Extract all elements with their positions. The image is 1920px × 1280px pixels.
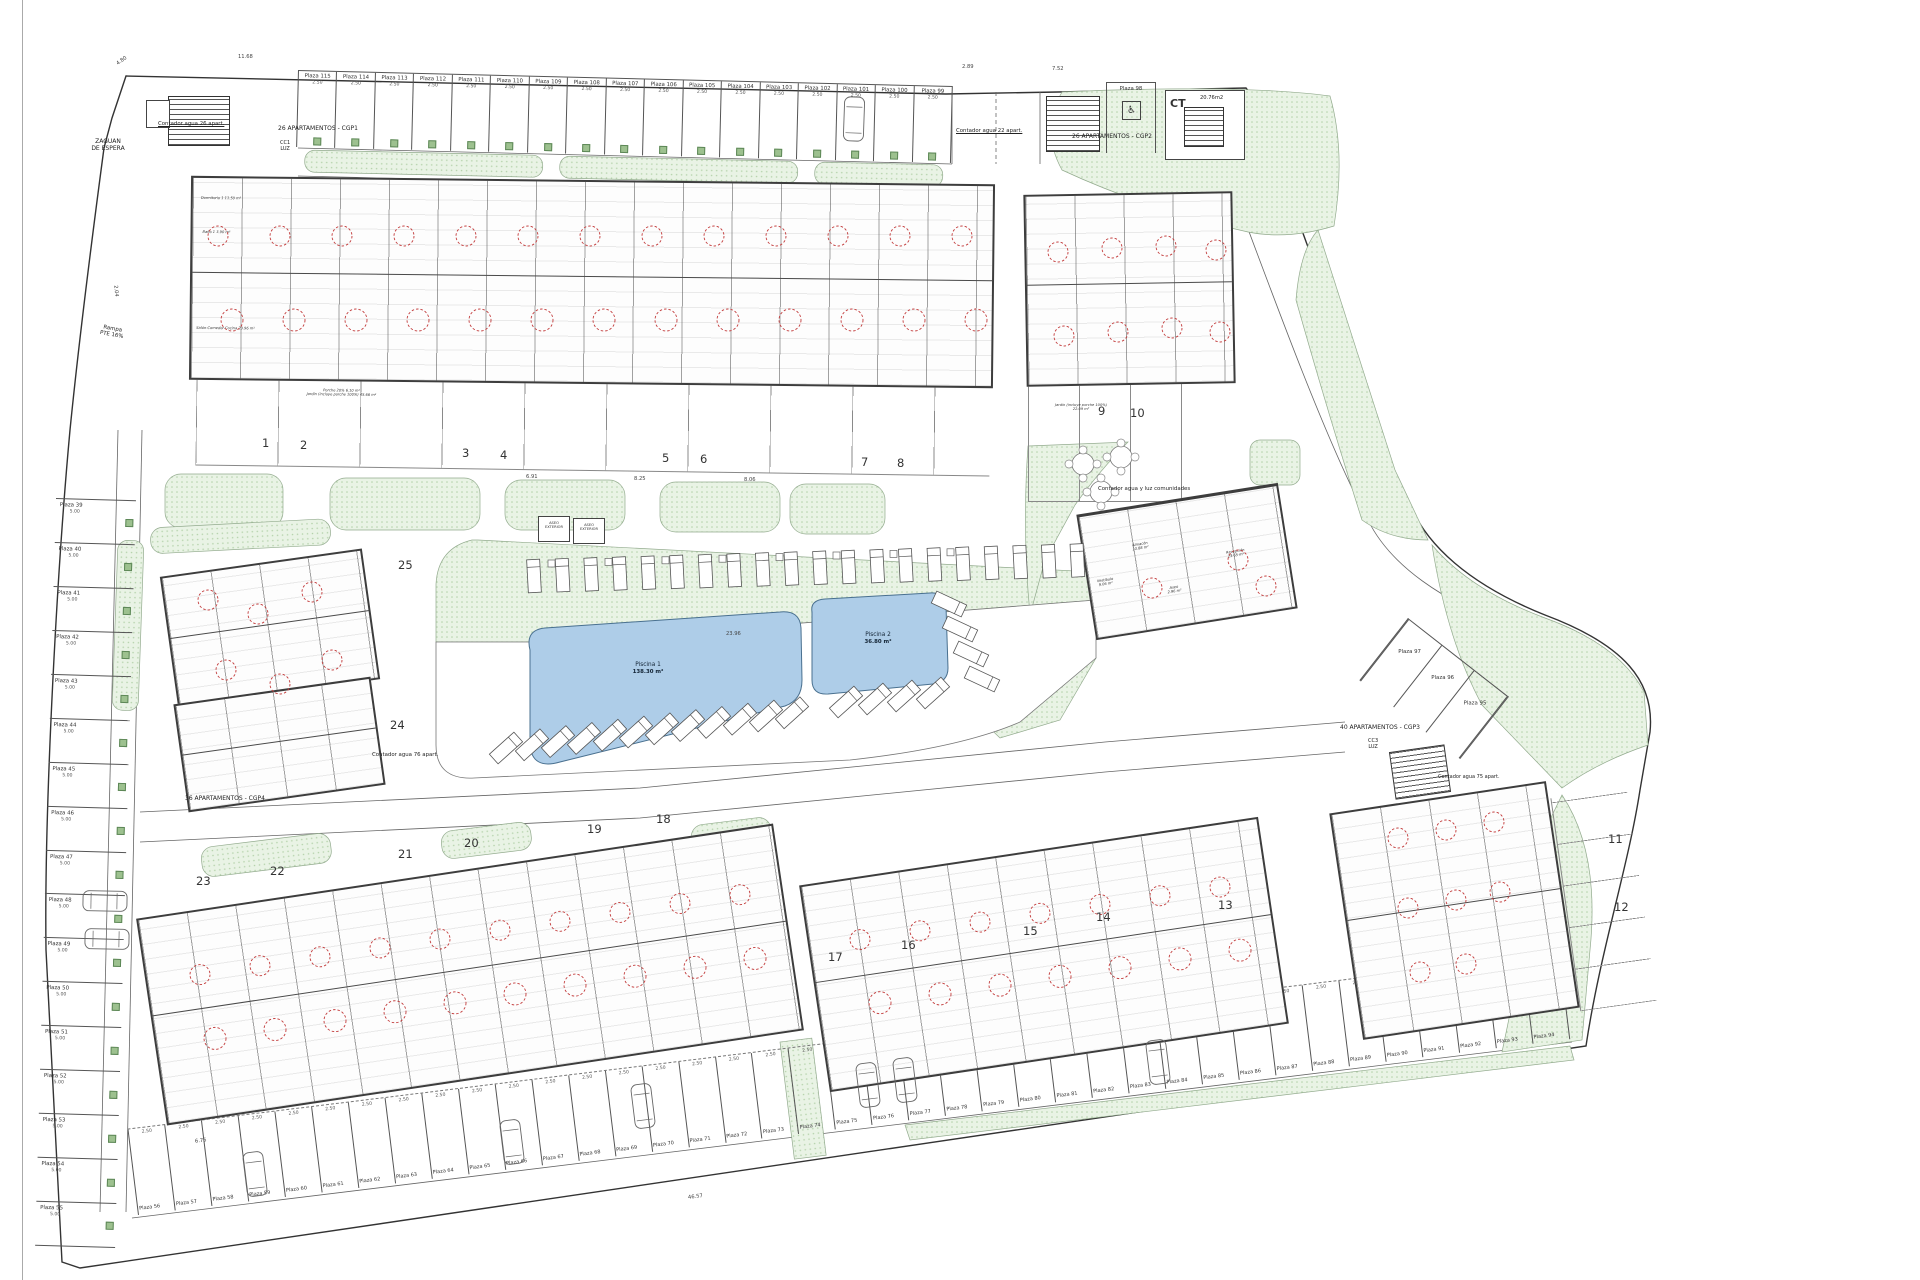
parking-stall-label: Plaza 73	[763, 1127, 785, 1136]
parking-stall-label: Plaza 75	[836, 1118, 858, 1127]
parking-stall-dim: 5.00	[63, 729, 129, 736]
plot-number-23: 23	[196, 874, 211, 888]
contador76-label: Contador agua 76 apart.	[372, 752, 438, 758]
parking-stall-dim: 2.50	[837, 93, 875, 99]
plot-number-12: 12	[1614, 900, 1629, 914]
ct-equipment	[1184, 107, 1224, 147]
parking-stall-label: Plaza 114	[337, 74, 375, 81]
parking-stall-label: Plaza 99	[914, 88, 952, 95]
parking-stall-dim: 2.50	[142, 1129, 153, 1135]
parking-stall-dim: 2.50	[765, 1052, 776, 1058]
parking-stall: Plaza 525.00	[39, 1069, 120, 1115]
plot-number-17: 17	[828, 950, 843, 964]
shrub-icon	[109, 1090, 117, 1098]
parking-stall-dim: 2.50	[452, 84, 490, 90]
parking-stall-dim: 2.50	[645, 88, 683, 94]
block-b-apartments	[1023, 191, 1235, 387]
parking-stall-label: Plaza 98	[1107, 86, 1155, 92]
contadorcom-label: Contador agua y luz comunidades	[1098, 486, 1190, 492]
parking-stall: Plaza 1152.50	[296, 71, 336, 148]
parking-stall-dim: 5.00	[65, 685, 131, 692]
shrub-icon	[851, 151, 859, 159]
plot-number-24: 24	[390, 718, 405, 732]
ct-room: CT 20.76m2	[1165, 90, 1245, 160]
cgp4-label: 36 APARTAMENTOS - CGP4	[185, 795, 265, 802]
parking-stall: Plaza 485.00	[44, 893, 125, 939]
parking-stall-dim: 2.50	[215, 1120, 226, 1126]
parking-stall: Plaza 1122.50	[411, 74, 451, 151]
shrub-icon	[697, 147, 705, 155]
parking-stall-dim: 5.00	[67, 597, 133, 604]
parking-stall-label: Plaza 93	[1497, 1037, 1519, 1046]
parking-stall-label: Plaza 64	[432, 1167, 454, 1176]
shrub-icon	[108, 1134, 116, 1142]
parking-stall-label: Plaza 90	[1386, 1050, 1408, 1059]
parking-stall-dim: 2.50	[729, 1057, 740, 1063]
parking-stall-dim: 5.00	[50, 1212, 116, 1219]
parking-stall-label: Plaza 86	[1240, 1068, 1262, 1077]
shrub-icon	[659, 146, 667, 154]
parking-stall-label: Plaza 65	[469, 1163, 491, 1172]
parking-stall-label: Plaza 82	[1093, 1086, 1115, 1095]
room-label: Aseo 2.96 m²	[1167, 584, 1182, 595]
parking-stall-dim: 2.50	[875, 94, 913, 100]
parking-stall-label: Plaza 88	[1313, 1059, 1335, 1068]
parking-stall-dim: 2.50	[606, 88, 644, 94]
parking-stall-label: Plaza 60	[286, 1185, 308, 1194]
dim-label: 7.52	[1052, 66, 1064, 72]
parking-stall-dim: 5.00	[57, 949, 123, 956]
parking-stall-label: Plaza 66	[506, 1158, 528, 1167]
plot-number-25: 25	[398, 558, 413, 572]
parking-stall: Plaza 505.00	[41, 981, 122, 1027]
shrub-icon	[120, 695, 128, 703]
shrub-icon	[351, 138, 359, 146]
shrub-icon	[428, 140, 436, 148]
parking-stall-label: Plaza 113	[376, 75, 414, 82]
parking-stall-label: Plaza 103	[760, 84, 798, 91]
plot-number-2: 2	[300, 438, 307, 452]
ct-label: CT	[1170, 97, 1186, 110]
shrub-icon	[928, 152, 936, 160]
shrub-icon	[122, 651, 130, 659]
parking-stall: Plaza 425.00	[51, 630, 132, 676]
parking-stall: Plaza 495.00	[43, 937, 124, 983]
contador26-label: Contador agua 26 apart.	[158, 121, 224, 127]
dim-label: 8.06	[744, 477, 756, 483]
parking-stall-label: Plaza 112	[414, 76, 452, 83]
plot-number-10: 10	[1130, 406, 1145, 420]
plot-number-11: 11	[1608, 832, 1623, 846]
parking-stall: Plaza 445.00	[49, 718, 130, 764]
parking-stall-label: Plaza 102	[799, 85, 837, 92]
parking-stall-dim: 2.50	[1316, 985, 1327, 991]
parking-stall-label: Plaza 95	[1455, 701, 1496, 707]
dim-label: 6.91	[526, 474, 538, 480]
parking-stall: Plaza 555.00	[35, 1201, 116, 1248]
parking-stall: Plaza 415.00	[52, 586, 133, 632]
parking-stall-label: Plaza 89	[1350, 1055, 1372, 1064]
parking-stall: Plaza 1032.50	[758, 82, 798, 159]
parking-stall-dim: 5.00	[60, 861, 126, 868]
parking-stall-label: Plaza 115	[299, 73, 337, 80]
parking-stall: Plaza 455.00	[47, 762, 128, 808]
pool-2-label: Piscina 236.80 m²	[840, 632, 916, 646]
parking-stall-dim: 2.50	[582, 1075, 593, 1081]
parking-stall: Plaza 405.00	[54, 542, 135, 588]
shrub-icon	[582, 144, 590, 152]
parking-stall: Plaza 465.00	[46, 805, 127, 851]
parking-stall-dim: 2.50	[508, 1084, 519, 1090]
shrub-icon	[118, 783, 126, 791]
parking-stall: Plaza 475.00	[45, 849, 126, 895]
shrub-icon	[390, 139, 398, 147]
shrub-icon	[124, 563, 132, 571]
parking-stall-dim: 5.00	[51, 1168, 117, 1175]
block-a-garden-strips: Porche 20% 6.10 m² Jardín (incluye porch…	[195, 376, 990, 476]
parking-stall-label: Plaza 110	[491, 78, 529, 85]
parking-stall-dim: 2.50	[802, 1048, 813, 1054]
contador75-label: Contador agua 75 apart.	[1438, 774, 1500, 780]
room-label: Almacén 13.88 m²	[1131, 541, 1149, 552]
parking-stall-label: Plaza 92	[1460, 1041, 1482, 1050]
parking-stall-label: Plaza 63	[396, 1172, 418, 1181]
parking-stall: Plaza 1012.50	[835, 84, 875, 161]
parking-stall-dim: 2.50	[337, 81, 375, 87]
pool-kiosk-2: ASEO EXTERIOR	[573, 518, 605, 544]
parking-stall: Plaza 1092.50	[527, 77, 567, 154]
plot-number-18: 18	[656, 812, 671, 826]
parking-stall: Plaza 1072.50	[604, 79, 644, 156]
parking-stall: Plaza 1042.50	[719, 81, 759, 158]
block-g-stair-core	[1389, 744, 1451, 799]
parking-stall-dim: 2.50	[568, 87, 606, 93]
parking-stall-label: Plaza 76	[873, 1113, 895, 1122]
cc3-label: CC3 LUZ	[1368, 738, 1378, 750]
shrub-icon	[467, 141, 475, 149]
cgp3-label: 40 APARTAMENTOS - CGP3	[1340, 724, 1420, 731]
parking-stall-label: Plaza 57	[176, 1199, 198, 1208]
parking-stall-dim: 5.00	[68, 553, 134, 560]
shrub-icon	[505, 142, 513, 150]
plot-number-7: 7	[861, 455, 868, 469]
plot-number-8: 8	[897, 456, 904, 470]
dim-label: 2.04	[112, 285, 119, 297]
pool-kiosk-label: ASEO EXTERIOR	[576, 523, 602, 532]
plot-number-21: 21	[398, 847, 413, 861]
entry-stair-core	[1046, 96, 1100, 152]
parking-stall-dim: 2.50	[914, 95, 952, 101]
parking-stall-dim: 2.50	[376, 82, 414, 88]
plot-number-13: 13	[1218, 898, 1233, 912]
parking-stall-label: Plaza 74	[799, 1122, 821, 1131]
parking-stall-dim: 2.50	[529, 86, 567, 92]
contador22-label: Contador agua 22 apart.	[956, 128, 1022, 134]
plot-number-1: 1	[262, 436, 269, 450]
shrub-icon	[106, 1222, 114, 1230]
parking-stall-dim: 2.50	[325, 1106, 336, 1112]
parking-stall-98: Plaza 98 ♿	[1106, 82, 1156, 153]
plot-number-5: 5	[662, 451, 669, 465]
parking-stall: Plaza 395.00	[55, 498, 136, 544]
garden-label: Porche 20% 6.10 m² Jardín (incluye porch…	[296, 388, 386, 398]
parking-stall-label: Plaza 72	[726, 1131, 748, 1140]
shrub-icon	[115, 871, 123, 879]
parking-stall-label: Plaza 70	[653, 1140, 675, 1149]
parking-stall: Plaza 1102.50	[488, 76, 528, 153]
parking-stall-dim: 5.00	[62, 773, 128, 780]
parking-stall-dim: 5.00	[55, 1036, 121, 1043]
parking-stall: Plaza 1002.50	[873, 85, 913, 162]
parking-stall: Plaza 1132.50	[373, 73, 413, 150]
parking-stall-dim: 2.50	[398, 1097, 409, 1103]
parking-stall: Plaza 1082.50	[565, 78, 605, 155]
cc1-label: CC1 LUZ	[280, 140, 290, 152]
parking-stall-dim: 5.00	[66, 641, 132, 648]
dim-label: 8.25	[634, 476, 646, 482]
parking-stall-dim: 2.50	[491, 85, 529, 91]
parking-stall: Plaza 545.00	[36, 1157, 117, 1203]
parking-stall: Plaza 435.00	[50, 674, 131, 720]
pool-kiosk-label: ASEO EXTERIOR	[541, 521, 567, 530]
parking-stall-label: Plaza 69	[616, 1145, 638, 1154]
shrub-icon	[890, 151, 898, 159]
parking-stall: Plaza 515.00	[40, 1025, 121, 1071]
plot-number-19: 19	[587, 822, 602, 836]
parking-stall-label: Plaza 77	[909, 1109, 931, 1118]
parking-stall-label: Plaza 84	[1166, 1077, 1188, 1086]
parking-stall: Plaza 1062.50	[642, 79, 682, 156]
parking-stall: Plaza 1022.50	[796, 83, 836, 160]
parking-stall-label: Plaza 104	[722, 83, 760, 90]
parking-stall-dim: 5.00	[52, 1124, 118, 1131]
parking-stall-dim: 2.50	[692, 1061, 703, 1067]
shrub-icon	[813, 150, 821, 158]
plot-number-6: 6	[700, 452, 707, 466]
plot-number-4: 4	[500, 448, 507, 462]
cgp2-label: 26 APARTAMENTOS - CGP2	[1072, 133, 1152, 140]
zaguan-label: ZAGUAN DE ESPERA	[80, 138, 136, 152]
ct-area-label: 20.76m2	[1200, 95, 1223, 101]
plot-number-22: 22	[270, 864, 285, 878]
shrub-icon	[544, 143, 552, 151]
plot-number-14: 14	[1096, 910, 1111, 924]
plot-number-16: 16	[901, 938, 916, 952]
parking-stall: Plaza 1142.50	[335, 72, 375, 149]
parking-stall-label: Plaza 91	[1423, 1046, 1445, 1055]
parking-stall-label: Plaza 79	[983, 1100, 1005, 1109]
room-label: Salón-Comedor-Cocina 23.96 m²	[195, 326, 255, 331]
parking-stall-dim: 5.00	[61, 817, 127, 824]
plot-number-15: 15	[1023, 924, 1038, 938]
block-g-apartments	[1329, 781, 1579, 1040]
shrub-icon	[621, 145, 629, 153]
parking-row-top: Plaza 1152.50Plaza 1142.50Plaza 1132.50P…	[296, 70, 953, 163]
parking-stall: Plaza 1052.50	[681, 80, 721, 157]
parking-stall-label: Plaza 100	[876, 87, 914, 94]
parking-stall-label: Plaza 68	[579, 1149, 601, 1158]
block-a-apartments: Dormitorio 1 11.50 m² Baño 1 3.90 m² Sal…	[189, 176, 995, 388]
parking-stall-dim: 2.50	[683, 89, 721, 95]
parking-stall-label: Plaza 80	[1020, 1095, 1042, 1104]
parking-stall-label: Plaza 61	[322, 1181, 344, 1190]
parking-stall-label: Plaza 94	[1533, 1032, 1555, 1041]
shrub-icon	[119, 739, 127, 747]
shrub-icon	[117, 827, 125, 835]
parking-stall-label: Plaza 109	[530, 79, 568, 86]
parking-stall-label: Plaza 107	[606, 81, 644, 88]
parking-stall-label: Plaza 83	[1130, 1082, 1152, 1091]
dim-label: 23.96	[726, 631, 741, 637]
parking-stall-dim: 2.50	[414, 83, 452, 89]
shrub-icon	[112, 1003, 120, 1011]
shrub-icon	[313, 137, 321, 145]
shrub-icon	[125, 519, 133, 527]
parking-stall-label: Plaza 108	[568, 80, 606, 87]
parking-stall-label: Plaza 96	[1422, 675, 1463, 681]
parking-stall-label: Plaza 81	[1056, 1091, 1078, 1100]
handicap-icon: ♿	[1122, 101, 1141, 120]
parking-stall-label: Plaza 106	[645, 81, 683, 88]
pool-kiosk-1: ASEO EXTERIOR	[538, 516, 570, 542]
garden-label: Jardín (incluye porche 100%) 22.09 m²	[1038, 403, 1124, 412]
parking-stall-dim: 2.50	[252, 1115, 263, 1121]
shrub-icon	[107, 1178, 115, 1186]
parking-stall-dim: 5.00	[59, 905, 125, 912]
parking-stall-dim: 5.00	[56, 993, 122, 1000]
parking-stall-dim: 2.50	[299, 80, 337, 86]
room-label: Recepción 23.65 m²	[1226, 548, 1246, 559]
shrub-icon	[774, 149, 782, 157]
parking-stall-label: Plaza 67	[543, 1154, 565, 1163]
parking-stall-dim: 2.50	[288, 1111, 299, 1117]
plot-number-9: 9	[1098, 404, 1105, 418]
parking-stall-label: Plaza 111	[453, 77, 491, 84]
parking-stall-dim: 5.00	[54, 1080, 120, 1087]
parking-stall: Plaza 1112.50	[450, 75, 490, 152]
parking-stall-label: Plaza 56	[139, 1203, 161, 1212]
shrub-icon	[123, 607, 131, 615]
parking-stall: Plaza 992.50	[911, 86, 952, 163]
room-label: Baño 1 3.90 m²	[202, 230, 230, 235]
parking-stall-label: Plaza 78	[946, 1104, 968, 1113]
parking-stall-label: Plaza 62	[359, 1176, 381, 1185]
shrub-icon	[110, 1046, 118, 1054]
parking-stall-dim: 2.50	[722, 90, 760, 96]
parking-stall-label: Plaza 85	[1203, 1073, 1225, 1082]
parking-stall-label: Plaza 59	[249, 1190, 271, 1199]
parking-stall-dim: 2.50	[760, 91, 798, 97]
plot-number-20: 20	[464, 836, 479, 850]
parking-stall-dim: 2.50	[362, 1102, 373, 1108]
parking-stall-label: Plaza 105	[683, 82, 721, 89]
room-label: Dormitorio 1 11.50 m²	[201, 196, 241, 201]
parking-stall-dim: 2.50	[178, 1124, 189, 1130]
site-plan-page: CT 20.76m2 Dormitorio 1 11.50 m² Baño 1 …	[0, 0, 1920, 1280]
plot-number-3: 3	[462, 446, 469, 460]
parking-stall-dim: 5.00	[70, 509, 136, 516]
parking-stall-label: Plaza 58	[212, 1194, 234, 1203]
room-label: Vestíbulo 9.06 m²	[1097, 577, 1115, 588]
shrub-icon	[114, 915, 122, 923]
block-b-garden-strips: Jardín (incluye porche 100%) 22.09 m²	[1028, 383, 1232, 502]
shrub-icon	[736, 148, 744, 156]
parking-stall-dim: 2.50	[655, 1066, 666, 1072]
parking-stall-dim: 2.50	[799, 92, 837, 98]
parking-stall-dim: 2.50	[545, 1079, 556, 1085]
pool-1-label: Piscina 1138.30 m²	[608, 662, 688, 676]
parking-stall-dim: 2.50	[619, 1070, 630, 1076]
shrub-icon	[113, 959, 121, 967]
parking-stall-dim: 2.50	[472, 1088, 483, 1094]
parking-stall-label: Plaza 71	[689, 1136, 711, 1145]
parking-stall-dim: 2.50	[435, 1093, 446, 1099]
parking-stall: Plaza 535.00	[38, 1113, 119, 1159]
parking-stall-label: Plaza 87	[1276, 1064, 1298, 1073]
cgp1-label: 26 APARTAMENTOS - CGP1	[278, 125, 358, 132]
dim-label: 2.89	[962, 64, 974, 70]
parking-stall-label: Plaza 101	[837, 86, 875, 93]
parking-stall-label: Plaza 97	[1389, 649, 1430, 655]
dim-label: 11.68	[238, 54, 253, 60]
